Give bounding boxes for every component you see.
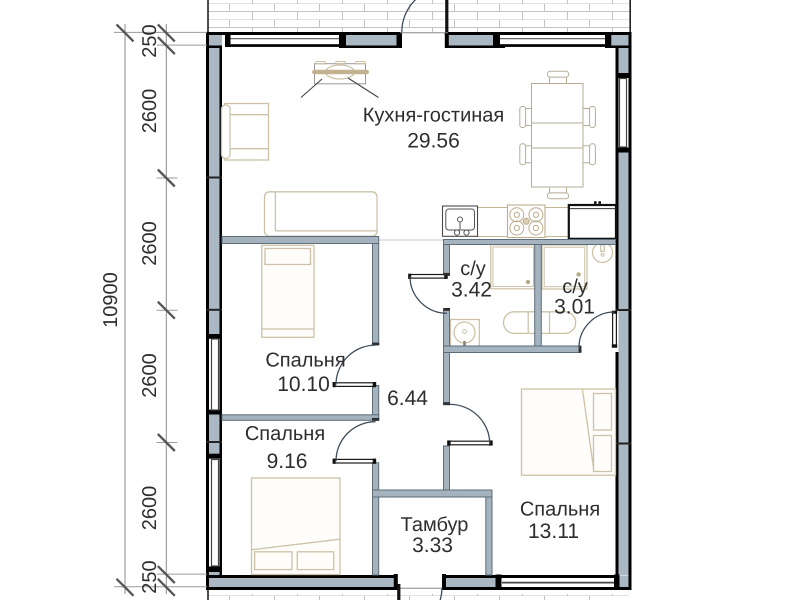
svg-text:3.01: 3.01 [554,296,595,319]
svg-text:10.10: 10.10 [277,373,330,396]
svg-text:2600: 2600 [139,89,161,134]
svg-text:29.56: 29.56 [407,130,460,153]
svg-text:Спальня: Спальня [245,423,325,445]
svg-text:Тамбур: Тамбур [401,514,469,536]
svg-text:10900: 10900 [100,272,122,328]
svg-text:Спальня: Спальня [520,499,600,521]
svg-text:6.44: 6.44 [387,387,428,410]
svg-text:9.16: 9.16 [267,450,308,473]
svg-text:2600: 2600 [139,353,161,398]
svg-text:с/у: с/у [460,258,486,280]
svg-text:250: 250 [139,24,161,57]
svg-text:Кухня-гостиная: Кухня-гостиная [363,105,505,127]
svg-text:3.33: 3.33 [412,534,453,557]
svg-text:2600: 2600 [139,221,161,266]
svg-text:3.42: 3.42 [451,279,492,302]
svg-text:13.11: 13.11 [528,520,579,543]
svg-text:2600: 2600 [139,486,161,531]
svg-text:Спальня: Спальня [265,350,345,372]
svg-text:250: 250 [139,560,161,593]
